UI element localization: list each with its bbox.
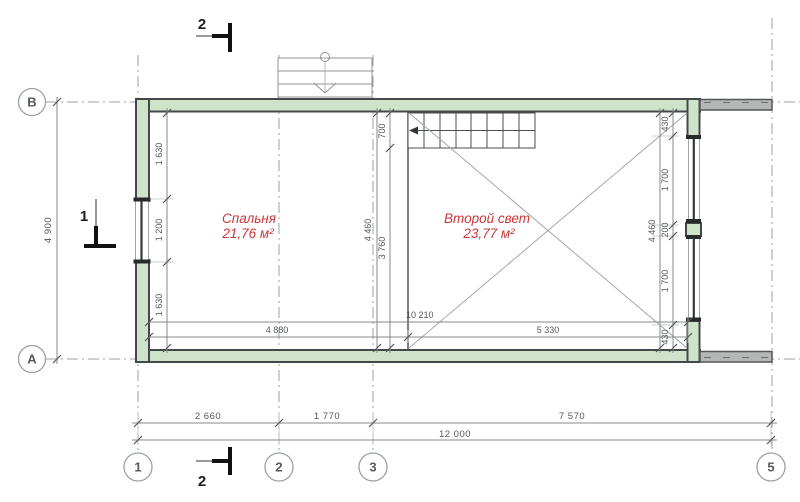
room-area: 23,77 м²	[462, 226, 515, 241]
wall-left-lower	[136, 260, 149, 362]
dim-label: 430	[660, 329, 670, 344]
dim-label: 1 770	[314, 411, 340, 422]
cut-wall-bottom-right	[700, 352, 772, 363]
wall-right-top	[688, 99, 700, 138]
wall-top	[136, 99, 700, 112]
section-marker-left: 1	[80, 199, 116, 248]
grid-label: 1	[134, 460, 141, 475]
section-number: 2	[198, 16, 206, 33]
wall-right-pier	[686, 223, 701, 236]
window-right-lower	[686, 235, 701, 322]
cut-wall-layer	[700, 100, 772, 363]
void-cross	[409, 113, 687, 348]
dim-label: 12 000	[439, 429, 471, 440]
floor-plan-canvas: 2 660 1 770 7 570 12 000 4 900 1 630 1 2…	[0, 0, 800, 502]
section-marker-bottom: 2	[196, 447, 232, 490]
grid-label: 3	[369, 460, 376, 475]
cut-wall-top-right	[700, 100, 772, 111]
room-labels: Спальня 21,76 м² Второй свет 23,77 м²	[221, 211, 530, 241]
section-number: 2	[198, 473, 206, 490]
grid-label: В	[27, 95, 36, 110]
dim-label: 2 660	[195, 411, 221, 422]
dim-label: 200	[660, 222, 670, 237]
section-number: 1	[80, 208, 88, 225]
dim-label: 5 330	[537, 325, 560, 335]
window-right-upper	[686, 135, 701, 223]
dim-label: 7 570	[559, 411, 585, 422]
wall-bottom	[136, 350, 700, 362]
grid-label: 2	[275, 460, 282, 475]
dim-label: 1 200	[154, 219, 164, 242]
dim-label: 700	[377, 123, 387, 138]
section-marker-top: 2	[196, 16, 232, 52]
dim-label: 4 900	[43, 217, 54, 243]
grid-label: 5	[767, 460, 774, 475]
stair-main	[408, 113, 535, 148]
grid-label: А	[27, 352, 37, 367]
dim-label: 1 630	[154, 294, 164, 317]
dim-label: 4 880	[266, 325, 289, 335]
floor-plan-viewport: 2 660 1 770 7 570 12 000 4 900 1 630 1 2…	[0, 0, 800, 502]
room-name: Спальня	[222, 211, 276, 226]
dim-label: 1 630	[154, 143, 164, 166]
dim-label: 1 700	[660, 270, 670, 293]
dim-label: 430	[660, 116, 670, 131]
dim-label: 4 460	[647, 220, 657, 243]
wall-right-bottom	[688, 321, 700, 362]
dimension-layer: 2 660 1 770 7 570 12 000 4 900 1 630 1 2…	[43, 97, 777, 445]
wall-left-upper	[136, 99, 149, 201]
dim-label: 3 760	[377, 237, 387, 260]
dim-label: 1 700	[660, 169, 670, 192]
room-name: Второй свет	[444, 211, 530, 226]
dim-label: 4 460	[363, 219, 373, 242]
porch-stair	[278, 53, 372, 98]
dim-label: 10 210	[406, 310, 434, 320]
grid-bubbles	[19, 89, 786, 482]
window-left	[134, 198, 151, 264]
room-area: 21,76 м²	[221, 226, 274, 241]
